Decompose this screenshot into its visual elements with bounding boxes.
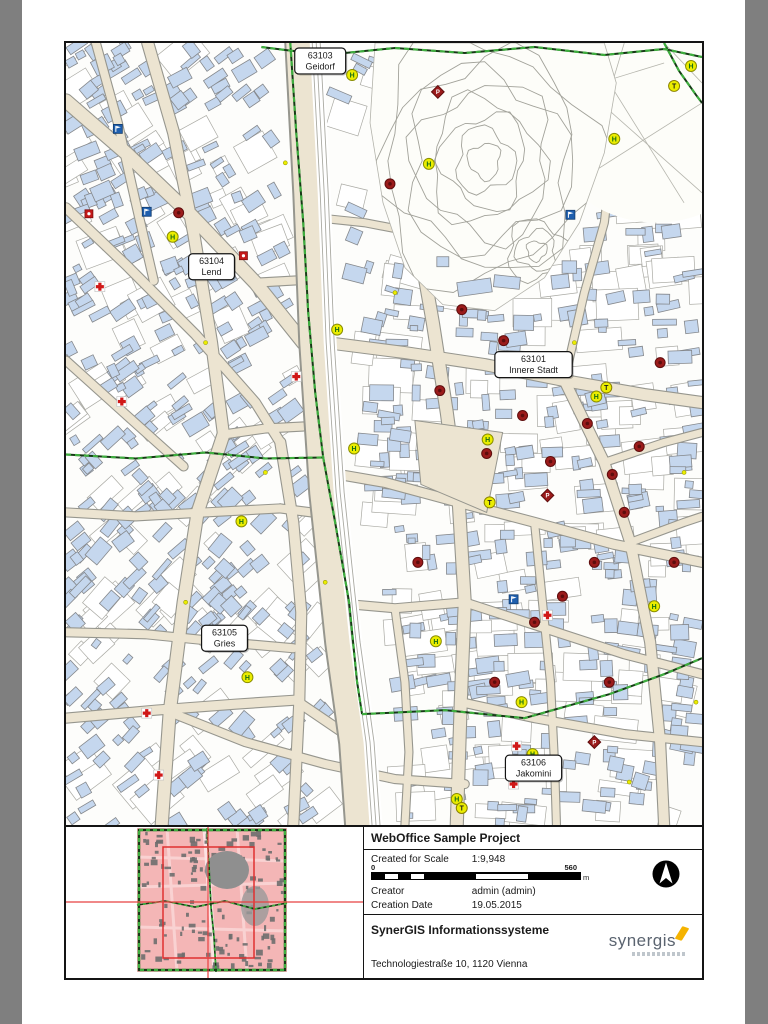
- svg-text:Innere Stadt: Innere Stadt: [509, 365, 558, 375]
- svg-text:H: H: [485, 437, 490, 444]
- creator-label: Creator: [371, 886, 469, 897]
- print-preview: PPPHHHHHHHHHHHHHHHHTTTT63103Geidorf63104…: [0, 0, 768, 1024]
- pharmacy-cross-marker: [291, 372, 301, 382]
- poi-marker: [634, 441, 644, 451]
- poi-marker: [499, 336, 509, 346]
- transit-stop-marker: H: [332, 324, 343, 335]
- scale-bar: 0 560 m: [371, 863, 579, 885]
- poi-marker: [530, 617, 540, 627]
- svg-text:H: H: [239, 519, 244, 526]
- street-lamp-dot: [682, 470, 686, 474]
- company-section: SynerGIS Informationssysteme Technologie…: [364, 915, 702, 978]
- svg-text:H: H: [594, 394, 599, 401]
- svg-text:H: H: [454, 797, 459, 804]
- street-lamp-dot: [572, 341, 576, 345]
- svg-text:63101: 63101: [521, 354, 546, 364]
- svg-text:H: H: [245, 675, 250, 682]
- emergency-square-marker: [85, 210, 93, 218]
- main-map[interactable]: PPPHHHHHHHHHHHHHHHHTTTT63103Geidorf63104…: [66, 43, 702, 825]
- svg-text:63104: 63104: [199, 256, 224, 266]
- scale-bar-segments: [371, 872, 581, 880]
- street-lamp-dot: [323, 580, 327, 584]
- details-cell: WebOffice Sample Project Created for Sca…: [364, 827, 702, 978]
- street-lamp-dot: [283, 161, 287, 165]
- pharmacy-cross-marker: [154, 770, 164, 780]
- taxi-stand-marker: T: [669, 80, 680, 91]
- svg-text:Geidorf: Geidorf: [306, 61, 336, 71]
- logo-accent-mark: [675, 926, 690, 941]
- svg-text:H: H: [612, 136, 617, 143]
- svg-text:T: T: [604, 385, 609, 392]
- transit-stop-marker: H: [236, 516, 247, 527]
- transit-stop-marker: H: [242, 672, 253, 683]
- svg-text:H: H: [352, 446, 357, 453]
- poi-marker: [435, 386, 445, 396]
- district-label: 63104Lend: [189, 254, 236, 281]
- district-label: 63105Gries: [202, 625, 249, 652]
- svg-text:H: H: [433, 639, 438, 646]
- project-title: WebOffice Sample Project: [364, 827, 702, 850]
- pharmacy-cross-marker: [512, 741, 522, 751]
- transit-stop-marker: H: [349, 443, 360, 454]
- taxi-stand-marker: T: [456, 803, 467, 814]
- svg-text:63106: 63106: [521, 758, 546, 768]
- transit-stop-marker: H: [609, 133, 620, 144]
- page: PPPHHHHHHHHHHHHHHHHTTTT63103Geidorf63104…: [22, 0, 745, 1024]
- transit-stop-marker: H: [347, 69, 358, 80]
- poi-marker: [174, 208, 184, 218]
- svg-text:Gries: Gries: [214, 639, 236, 649]
- overview-map-cell: [66, 827, 364, 978]
- transit-stop-marker: H: [482, 434, 493, 445]
- street-lamp-dot: [204, 341, 208, 345]
- metadata-section: Created for Scale 1:9,948 0 560 m Creato…: [364, 850, 702, 915]
- scale-bar-start: 0: [371, 863, 375, 872]
- poi-marker: [619, 507, 629, 517]
- creation-date-label: Creation Date: [371, 900, 469, 911]
- company-address: Technologiestraße 10, 1120 Vienna: [371, 959, 527, 970]
- transit-stop-marker: H: [591, 391, 602, 402]
- svg-text:63103: 63103: [308, 50, 333, 60]
- company-name: SynerGIS Informationssysteme: [371, 923, 549, 937]
- svg-text:P: P: [436, 90, 440, 96]
- svg-text:H: H: [335, 327, 340, 334]
- creation-date-value: 19.05.2015: [472, 900, 522, 911]
- svg-text:H: H: [350, 73, 355, 80]
- info-flag-marker: [566, 210, 575, 219]
- poi-marker: [655, 358, 665, 368]
- overview-map: [66, 827, 363, 978]
- scale-bar-unit: m: [583, 873, 589, 882]
- district-label: 63101Innere Stadt: [495, 352, 574, 379]
- svg-text:H: H: [170, 234, 175, 241]
- svg-text:P: P: [545, 494, 549, 500]
- district-label: 63106Jakomini: [505, 755, 563, 782]
- north-arrow-icon: [650, 858, 682, 890]
- poi-marker: [518, 411, 528, 421]
- transit-stop-marker: H: [167, 231, 178, 242]
- svg-text:63105: 63105: [212, 628, 237, 638]
- info-panel: WebOffice Sample Project Created for Sca…: [64, 825, 704, 980]
- creator-value: admin (admin): [472, 886, 536, 897]
- street-lamp-dot: [393, 291, 397, 295]
- poi-marker: [582, 419, 592, 429]
- poi-marker: [607, 469, 617, 479]
- poi-marker: [557, 591, 567, 601]
- street-lamp-dot: [627, 780, 631, 784]
- transit-stop-marker: H: [686, 60, 697, 71]
- svg-text:P: P: [592, 740, 596, 746]
- info-flag-marker: [509, 595, 518, 604]
- info-flag-marker: [142, 207, 151, 216]
- poi-marker: [490, 677, 500, 687]
- pharmacy-cross-marker: [142, 708, 152, 718]
- poi-marker: [545, 456, 555, 466]
- emergency-square-marker: [239, 252, 247, 260]
- poi-marker: [604, 677, 614, 687]
- street-lamp-dot: [694, 700, 698, 704]
- taxi-stand-marker: T: [484, 497, 495, 508]
- poi-marker: [385, 179, 395, 189]
- taxi-stand-marker: T: [601, 382, 612, 393]
- street-lamp-dot: [263, 470, 267, 474]
- svg-text:H: H: [652, 604, 657, 611]
- poi-marker: [413, 557, 423, 567]
- transit-stop-marker: H: [423, 158, 434, 169]
- pharmacy-cross-marker: [117, 397, 127, 407]
- creator-row: Creator admin (admin): [371, 886, 536, 897]
- poi-marker: [669, 557, 679, 567]
- info-flag-marker: [113, 124, 122, 133]
- transit-stop-marker: H: [649, 601, 660, 612]
- svg-text:Lend: Lend: [202, 267, 222, 277]
- svg-text:T: T: [488, 500, 493, 507]
- synergis-logo: synergis: [609, 927, 686, 956]
- svg-text:T: T: [672, 84, 677, 91]
- pharmacy-cross-marker: [95, 282, 105, 292]
- district-label: 63103Geidorf: [295, 48, 347, 75]
- poi-marker: [482, 448, 492, 458]
- logo-tagline: [632, 952, 686, 956]
- main-map-frame: PPPHHHHHHHHHHHHHHHHTTTT63103Geidorf63104…: [64, 41, 704, 827]
- svg-text:H: H: [426, 161, 431, 168]
- svg-text:H: H: [519, 700, 524, 707]
- logo-text: synergis: [609, 931, 676, 950]
- creation-date-row: Creation Date 19.05.2015: [371, 900, 522, 911]
- poi-marker: [589, 557, 599, 567]
- pharmacy-cross-marker: [543, 610, 553, 620]
- scale-bar-end: 560: [564, 863, 577, 872]
- svg-text:Jakomini: Jakomini: [516, 769, 551, 779]
- transit-stop-marker: H: [516, 697, 527, 708]
- poi-marker: [457, 305, 467, 315]
- street-lamp-dot: [184, 600, 188, 604]
- svg-text:H: H: [689, 64, 694, 71]
- svg-text:T: T: [460, 806, 465, 813]
- transit-stop-marker: H: [430, 636, 441, 647]
